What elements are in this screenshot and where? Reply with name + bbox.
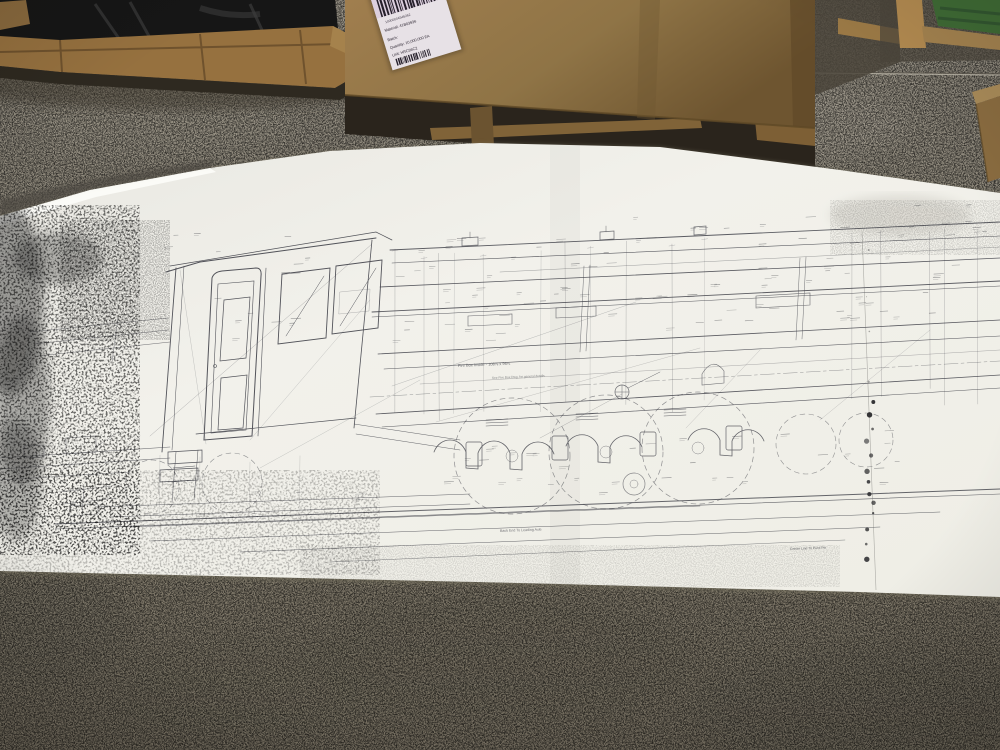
warehouse-photo: 10000004546262 Material: 41B03936 Batch:… xyxy=(0,0,1000,750)
vignette xyxy=(0,0,1000,750)
photo-canvas: 10000004546262 Material: 41B03936 Batch:… xyxy=(0,0,1000,750)
